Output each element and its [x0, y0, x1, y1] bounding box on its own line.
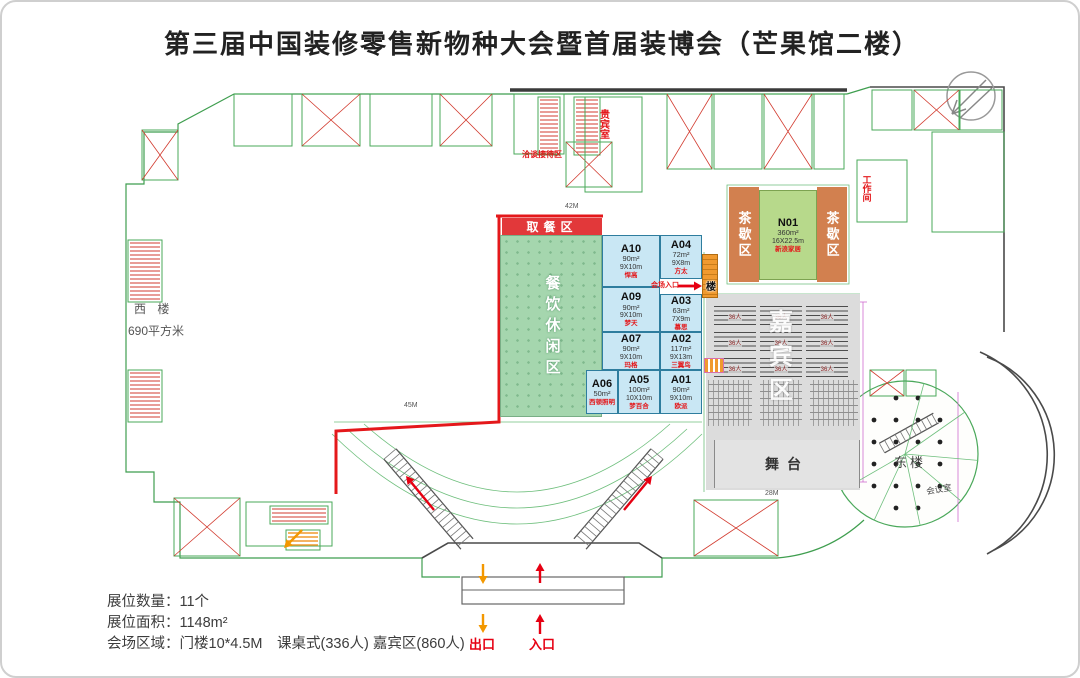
booth-area: 50m²	[593, 390, 610, 399]
vip-room-label: 贵宾室	[596, 102, 610, 146]
west-building-label: 西 楼	[134, 300, 198, 317]
compass-icon	[947, 72, 995, 120]
booth-brand-label: 欧派	[675, 403, 688, 410]
booth-size: 7X9m	[672, 316, 690, 324]
booth-area: 90m²	[622, 255, 639, 264]
booth-brand-label: 西顿照明	[589, 399, 615, 406]
booth-brand-label: 新浪家居	[775, 246, 801, 253]
legend-booth-area: 展位面积：1148m²	[107, 613, 465, 634]
booth-size: 9X13m	[670, 354, 692, 362]
booth-size: 9X10m	[620, 264, 642, 272]
legend-venue-info: 会场区域：门楼10*4.5M 课桌式(336人) 嘉宾区(860人)	[107, 634, 465, 655]
desk-block: 36人	[806, 306, 848, 326]
dim-42m: 42M	[565, 203, 579, 210]
legend-booth-count: 展位数量：11个	[107, 592, 465, 613]
venue-entry-label: 会场入口	[645, 280, 679, 290]
food-pickup-label: 取餐区	[526, 218, 577, 235]
booth-A02: A02117m²9X13m三翼鸟	[660, 332, 702, 370]
staircase-label: 楼	[701, 278, 721, 293]
dining-lounge-label: 餐饮休闲区	[535, 252, 569, 402]
booth-area: 72m²	[672, 251, 689, 260]
desk-block-label: 36人	[820, 338, 835, 347]
side-door-marker	[704, 358, 724, 373]
booth-size: 16X22.5m	[772, 238, 804, 246]
tea-break-zone-left: 茶歇区	[729, 187, 759, 282]
booth-code: A09	[621, 291, 641, 304]
booth-brand-label: 梦天	[625, 320, 638, 327]
booth-area: 117m²	[671, 345, 692, 354]
booth-area: 63m²	[672, 307, 689, 316]
work-room-label: 工作间	[860, 164, 874, 212]
desk-block-label: 36人	[728, 364, 743, 373]
floorplan-screenshot: 第三届中国装修零售新物种大会暨首届装博会（芒果馆二楼）	[0, 0, 1080, 678]
stage-zone: 舞台	[714, 440, 860, 488]
desk-block: 36人	[806, 358, 848, 378]
booth-area: 360m²	[777, 229, 798, 238]
entrance-label: 入口	[520, 634, 564, 653]
reception-label: 洽谈接待区	[514, 149, 570, 160]
east-building-label: 东楼	[894, 452, 938, 471]
booth-brand-label: 三翼鸟	[671, 362, 691, 369]
booth-brand-label: 梦百合	[629, 403, 649, 410]
booth-A01: A0190m²9X10m欧派	[660, 370, 702, 414]
exit-label: 出口	[460, 634, 504, 653]
booth-N01: N01360m²16X22.5m新浪家居	[759, 190, 817, 280]
booth-brand-label: 悍高	[625, 272, 638, 279]
booth-size: 9X10m	[670, 395, 692, 403]
booth-size: 9X8m	[672, 260, 690, 268]
booth-brand-label: 玛格	[625, 362, 638, 369]
desk-block-label: 36人	[728, 338, 743, 347]
booth-A06: A0650m²西顿照明	[586, 370, 618, 414]
booth-A03: A0363m²7X9m慕思	[660, 294, 702, 332]
booth-size: 10X10m	[626, 395, 652, 403]
west-building-area: 690平方米	[128, 322, 208, 339]
booth-A04: A0472m²9X8m方太	[660, 235, 702, 279]
legend-block: 展位数量：11个 展位面积：1148m² 会场区域：门楼10*4.5M 课桌式(…	[107, 592, 465, 655]
food-pickup-zone: 取餐区	[502, 218, 602, 235]
booth-area: 90m²	[622, 304, 639, 313]
desk-block-label: 36人	[820, 364, 835, 373]
desk-block-label: 36人	[728, 312, 743, 321]
booth-brand-label: 慕思	[675, 324, 688, 331]
desk-block: 36人	[714, 332, 756, 352]
booth-size: 9X10m	[620, 354, 642, 362]
booth-area: 90m²	[622, 345, 639, 354]
desk-block-label: 36人	[820, 312, 835, 321]
booth-A07: A0790m²9X10m玛格	[602, 332, 660, 370]
guest-area-watermark: 嘉宾区	[760, 304, 796, 416]
dim-45m: 45M	[404, 402, 418, 409]
desk-block: 36人	[806, 332, 848, 352]
booth-A05: A05100m²10X10m梦百合	[618, 370, 660, 414]
booth-brand-label: 方太	[675, 268, 688, 275]
tea-break-zone-right: 茶歇区	[817, 187, 847, 282]
booth-area: 90m²	[672, 386, 689, 395]
dim-28m: 28M	[765, 490, 779, 497]
desk-block: 36人	[714, 306, 756, 326]
booth-A09: A0990m²9X10m梦天	[602, 287, 660, 332]
booth-area: 100m²	[628, 386, 649, 395]
